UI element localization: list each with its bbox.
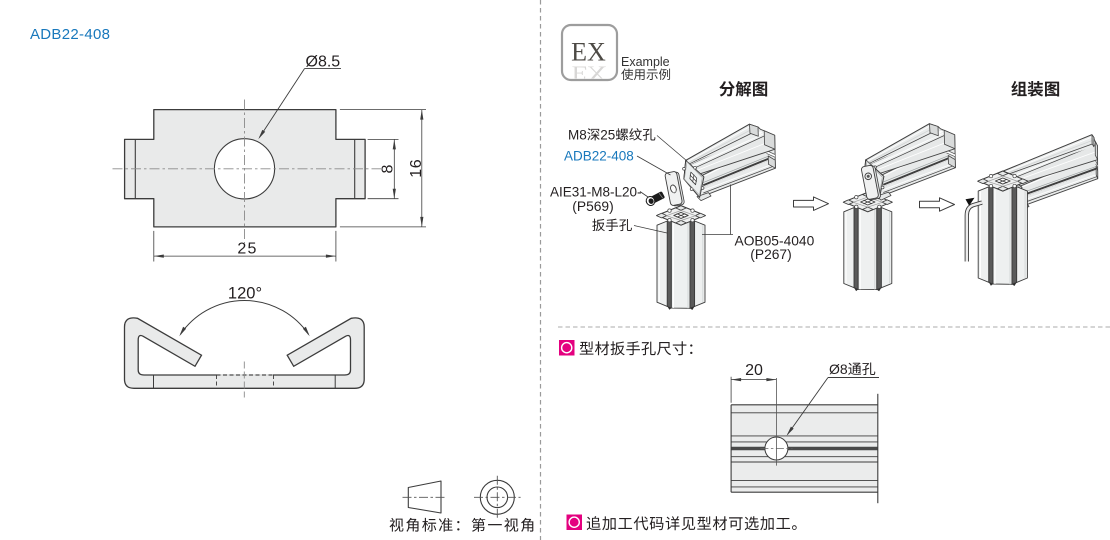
svg-text:Example: Example: [621, 55, 670, 69]
svg-text:20: 20: [745, 362, 763, 379]
svg-text:(P267): (P267): [750, 247, 791, 262]
svg-text:120°: 120°: [228, 285, 262, 303]
svg-text:EX: EX: [571, 38, 606, 67]
svg-text:8: 8: [379, 164, 396, 173]
svg-text:25: 25: [600, 128, 615, 143]
svg-text:M8: M8: [568, 128, 587, 143]
svg-text:ADB22-408: ADB22-408: [564, 149, 634, 164]
svg-text:AIE31-M8-L20-: AIE31-M8-L20-: [550, 185, 642, 200]
svg-text:25: 25: [237, 241, 257, 258]
svg-text:16: 16: [408, 159, 425, 178]
svg-text:Ø8: Ø8: [829, 361, 848, 377]
svg-text:ADB22-408: ADB22-408: [30, 26, 110, 43]
svg-text:Ø8.5: Ø8.5: [306, 54, 341, 71]
svg-text:(P569): (P569): [572, 199, 613, 214]
